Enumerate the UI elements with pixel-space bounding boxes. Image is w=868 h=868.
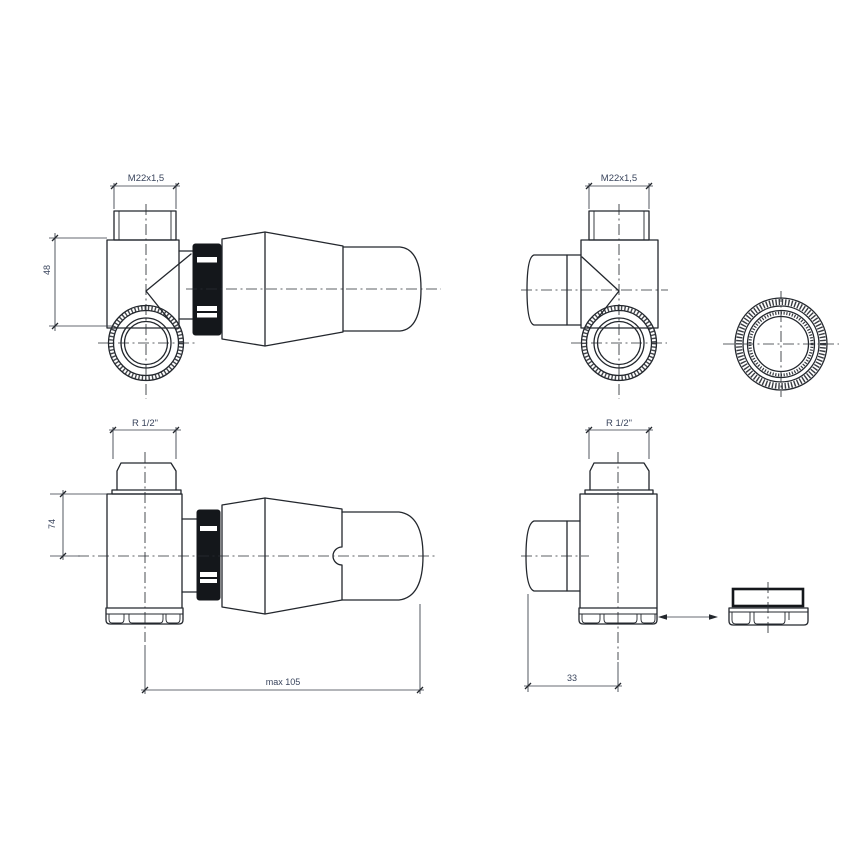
assembly-arrow-left xyxy=(658,614,667,620)
drawing-canvas: M22x1,5 48 xyxy=(0,0,868,868)
ring-slot xyxy=(197,306,217,311)
nut-band xyxy=(729,608,808,625)
nut-facet xyxy=(129,614,163,623)
thread-dim-label: M22x1,5 xyxy=(128,173,164,184)
valve-body xyxy=(580,494,657,608)
length-dim-label: max 105 xyxy=(266,677,301,687)
nut-facet xyxy=(109,614,124,623)
ring-inner-circle xyxy=(754,317,809,372)
valve-body xyxy=(107,494,182,608)
thread-dim-label: R 1/2" xyxy=(606,418,632,429)
extension-lines xyxy=(113,427,176,459)
extension-lines xyxy=(50,494,107,556)
ring-slot xyxy=(197,313,217,318)
threaded-connector xyxy=(114,211,176,240)
technical-drawing-svg: M22x1,5 48 xyxy=(0,0,868,868)
nut-facet xyxy=(732,612,750,624)
nut-facet xyxy=(582,614,600,623)
nut-facet xyxy=(604,614,637,623)
bottom-nut-band xyxy=(106,608,183,624)
neck xyxy=(179,251,193,319)
ring-slot xyxy=(200,572,217,577)
height-dim-label: 48 xyxy=(42,265,52,275)
ring-slot xyxy=(197,257,217,263)
thread-dim-label: M22x1,5 xyxy=(601,173,637,184)
nut-facet xyxy=(166,614,180,623)
extension-lines xyxy=(49,238,112,326)
ring-slot xyxy=(200,579,217,583)
hex-connector xyxy=(590,463,649,490)
nut-facet xyxy=(641,614,655,623)
nut-facet xyxy=(754,612,785,624)
thread-dim-label: R 1/2" xyxy=(132,418,158,429)
hex-connector xyxy=(117,463,176,490)
ring-slot xyxy=(200,526,217,531)
offset-dim-label: 33 xyxy=(567,673,577,683)
union-ring-front-view xyxy=(723,291,839,397)
neck xyxy=(182,519,197,592)
view-bottom-left: R 1/2" 74 xyxy=(47,418,437,694)
valve-body xyxy=(581,240,658,328)
view-bottom-right: R 1/2" 33 xyxy=(521,418,718,692)
thread-lines xyxy=(119,211,171,240)
extension-lines xyxy=(589,427,649,459)
union-nut-side-view xyxy=(729,582,808,633)
assembly-arrow-right xyxy=(709,614,718,620)
extension-lines xyxy=(114,183,176,209)
view-top-left: M22x1,5 48 xyxy=(42,173,441,399)
locking-ring xyxy=(197,510,220,600)
pipe-stub xyxy=(527,255,581,325)
height-dim-label: 74 xyxy=(47,519,57,529)
view-top-right: M22x1,5 xyxy=(521,173,668,399)
